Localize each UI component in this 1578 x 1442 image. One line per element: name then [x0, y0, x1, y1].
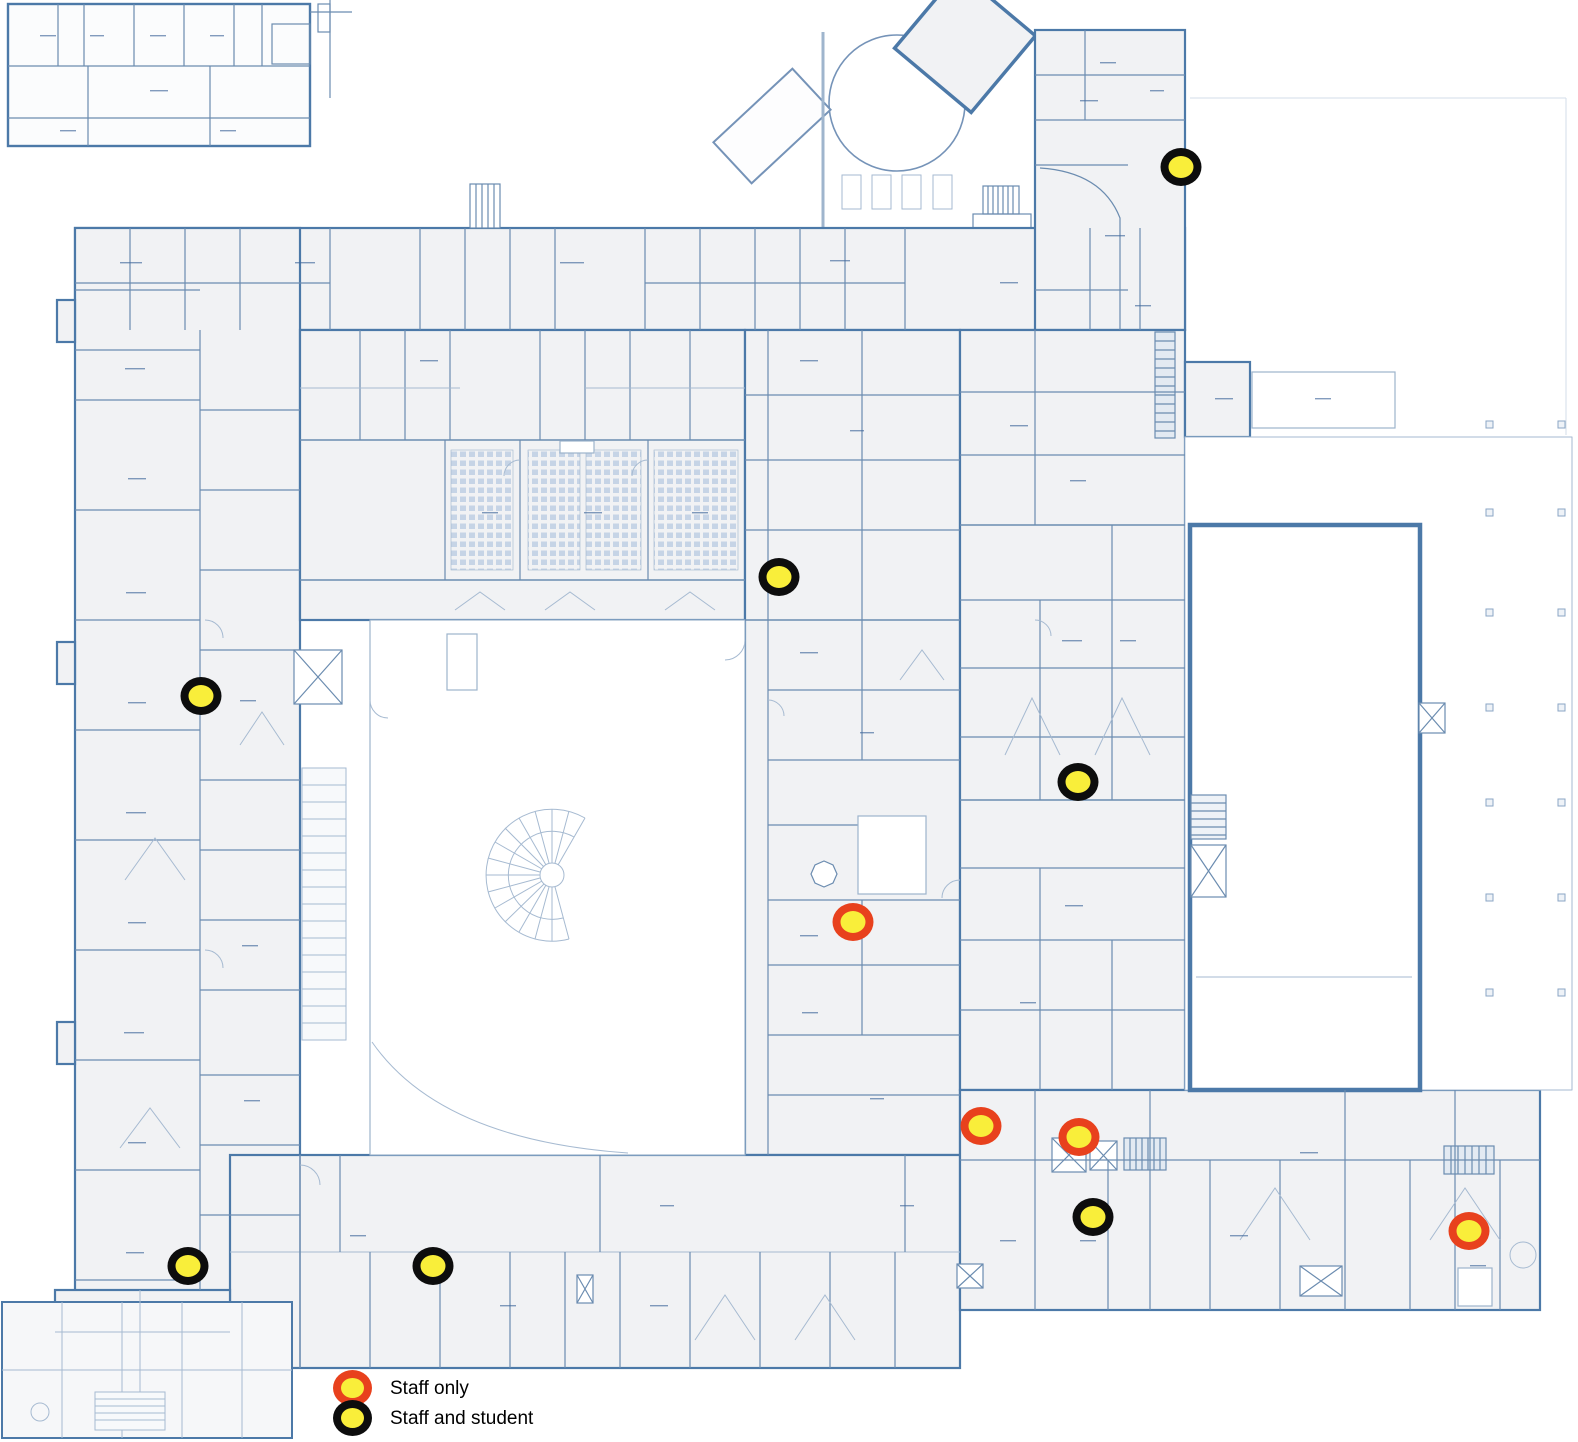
terrace-benches: [842, 175, 952, 209]
legend-item-staff-only: Staff only: [333, 1373, 533, 1403]
podium: [560, 441, 594, 453]
courtyard: [370, 620, 745, 1155]
legend-swatch-staff-and-student: [333, 1400, 372, 1436]
exterior-court: [713, 0, 1035, 236]
stair-icon: [1191, 795, 1226, 839]
long-staircase-icon: [302, 768, 346, 1040]
legend-item-staff-and-student: Staff and student: [333, 1403, 533, 1433]
west-wing: [75, 228, 300, 1310]
octagon-kiosk: [811, 861, 837, 887]
central-court-room: [858, 816, 926, 894]
east-center-wing: [960, 330, 1185, 1090]
elevator-icon: [1419, 703, 1445, 733]
south-east-wing: [960, 1090, 1540, 1310]
floor-plan-drawing: [0, 0, 1578, 1442]
legend: Staff only Staff and student: [333, 1373, 533, 1433]
outbuilding: [8, 4, 310, 146]
tilted-pavilion: [895, 0, 1036, 112]
elevator-icon: [1191, 845, 1226, 897]
central-wing: [745, 330, 960, 1155]
tilted-annex-outline: [713, 69, 830, 184]
main-hall: [1190, 525, 1445, 1090]
north-stair-icon: [470, 184, 500, 228]
lecture-hall-seats: [654, 450, 738, 570]
east-annex: [1185, 362, 1250, 437]
lecture-hall-seats: [528, 450, 580, 570]
legend-label-staff-and-student: Staff and student: [390, 1409, 533, 1428]
lecture-hall-seats: [586, 450, 641, 570]
legend-label-staff-only: Staff only: [390, 1379, 469, 1398]
lecture-hall-seats: [451, 450, 513, 570]
east-annex-hall: [1252, 372, 1395, 428]
floor-plan-page: Staff only Staff and student: [0, 0, 1578, 1442]
